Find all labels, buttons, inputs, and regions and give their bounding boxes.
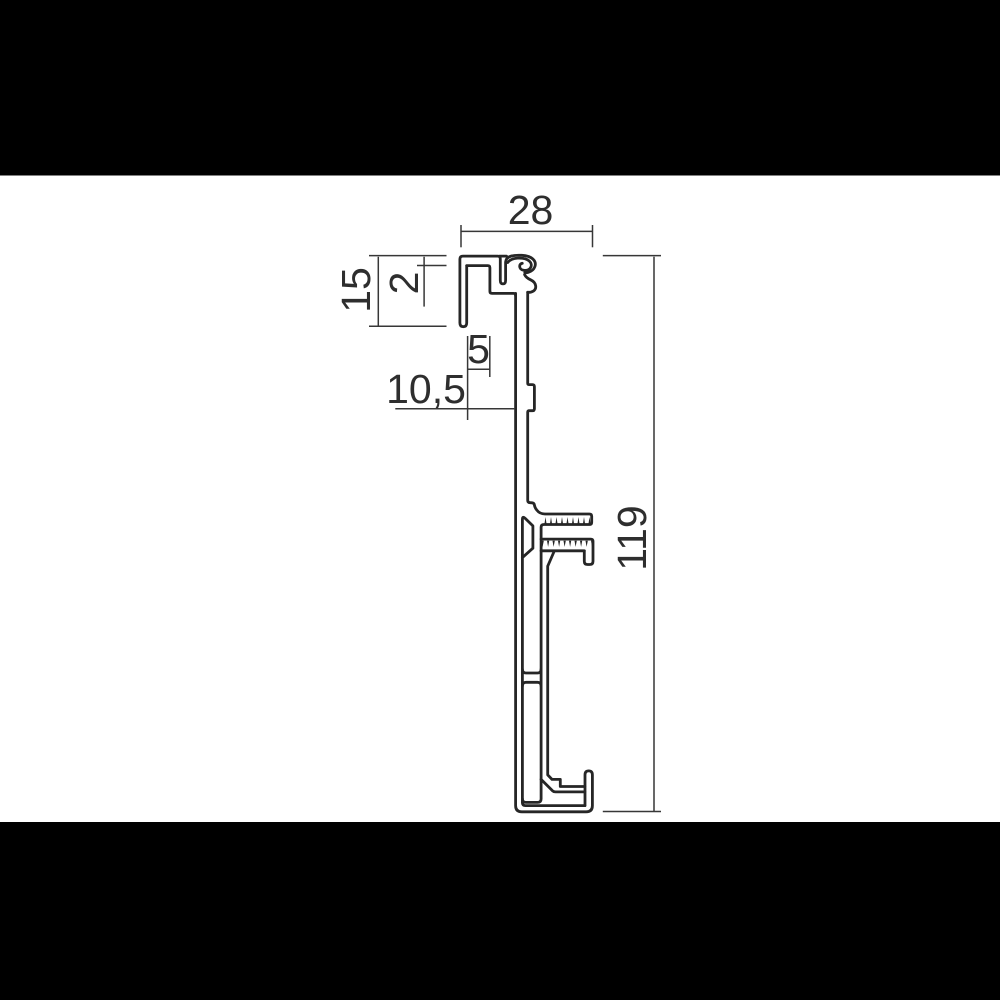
svg-text:2: 2 [381,272,427,295]
svg-text:119: 119 [609,505,655,570]
svg-text:28: 28 [508,187,554,233]
svg-text:5: 5 [467,326,490,372]
svg-text:15: 15 [333,267,379,313]
svg-text:10,5: 10,5 [386,366,466,412]
